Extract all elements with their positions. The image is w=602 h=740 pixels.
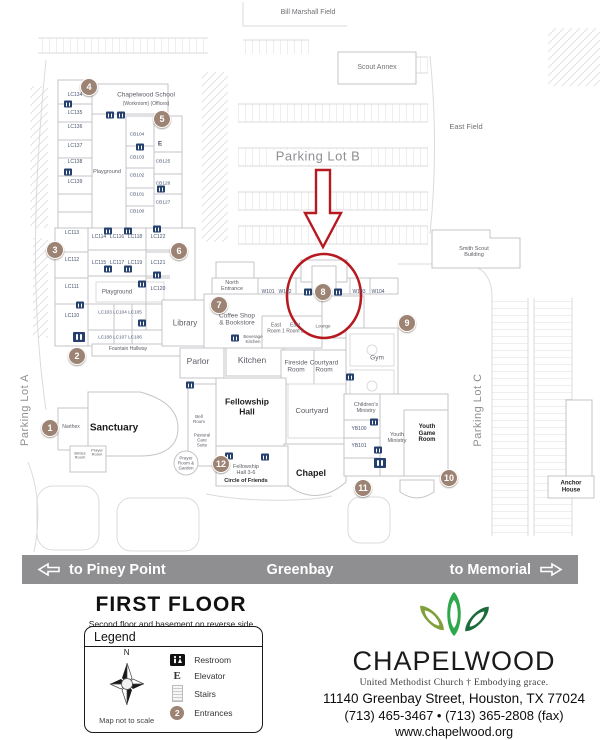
legend-title: Legend — [85, 627, 262, 647]
legend-label-restroom: Restroom — [194, 655, 231, 665]
brand-address: 11140 Greenbay Street, Houston, TX 77024 — [312, 691, 596, 706]
restroom-icon — [138, 281, 146, 288]
brand-tagline: United Methodist Church † Embodying grac… — [312, 678, 596, 688]
brand-name: CHAPELWOOD — [312, 646, 596, 677]
entrance-badge-icon: 2 — [170, 706, 184, 720]
restroom-icon — [106, 112, 114, 119]
entrance-8-marker: 8 — [314, 283, 332, 301]
legend-row-entrances: 2 Entrances — [168, 706, 262, 720]
entrance-9-marker: 9 — [398, 314, 416, 332]
to-memorial-label: to Memorial — [450, 562, 531, 578]
restroom-icon — [64, 169, 72, 176]
restroom-icon — [117, 112, 125, 119]
restroom-icon — [157, 186, 165, 193]
restroom-icon — [170, 654, 185, 666]
restroom-icon — [374, 447, 382, 454]
restroom-icon — [124, 266, 132, 273]
restroom-icon — [124, 228, 132, 235]
brand-block: CHAPELWOOD United Methodist Church † Emb… — [312, 590, 596, 739]
chapelwood-leaves-logo — [394, 590, 514, 640]
stairs-icon — [172, 685, 183, 702]
floor-title: FIRST FLOOR — [78, 593, 264, 617]
restroom-icon — [104, 228, 112, 235]
compass-rose-icon — [101, 656, 153, 712]
restroom-icon — [374, 458, 386, 468]
west-arrow-icon — [36, 562, 62, 577]
restroom-icon — [304, 289, 312, 296]
entrance-12-marker: 12 — [212, 455, 230, 473]
legend-label-stairs: Stairs — [194, 689, 216, 699]
banner-left-group: to Piney Point — [36, 562, 166, 578]
legend-row-elevator: E Elevator — [168, 670, 262, 682]
elevator-icon: E — [158, 141, 162, 148]
to-piney-point-label: to Piney Point — [69, 562, 166, 578]
compass-north-label: N — [124, 648, 130, 657]
entrance-1-marker: 1 — [41, 419, 59, 437]
restroom-icon — [136, 144, 144, 151]
legend-row-restroom: Restroom — [168, 654, 262, 666]
brand-website: www.chapelwood.org — [312, 725, 596, 739]
legend-label-elevator: Elevator — [194, 671, 225, 681]
entrance-10-marker: 10 — [440, 469, 458, 487]
legend-row-stairs: Stairs — [168, 685, 262, 702]
restroom-icon — [64, 101, 72, 108]
restroom-icon — [76, 302, 84, 309]
street-banner: to Piney Point Greenbay to Memorial — [22, 555, 578, 584]
greenbay-label: Greenbay — [267, 562, 334, 578]
restroom-icon — [104, 266, 112, 273]
entrance-11-marker: 11 — [354, 479, 372, 497]
campus-map-page: Bill Marshall FieldScout AnnexEast Field… — [0, 0, 602, 740]
east-arrow-icon — [538, 562, 564, 577]
entrance-2-marker: 2 — [68, 347, 86, 365]
restroom-icon — [186, 382, 194, 389]
restroom-icon — [334, 289, 342, 296]
entrance-4-marker: 4 — [80, 78, 98, 96]
entrance-3-marker: 3 — [46, 241, 64, 259]
entrance-6-marker: 6 — [170, 242, 188, 260]
banner-right-group: to Memorial — [450, 562, 564, 578]
entrance-7-marker: 7 — [210, 296, 228, 314]
compass-area: N Map not to scale — [85, 647, 168, 727]
restroom-icon — [231, 335, 239, 342]
legend-items: Restroom E Elevator Stairs 2 Entrances — [168, 647, 262, 727]
elevator-icon: E — [174, 670, 181, 682]
restroom-icon — [370, 419, 378, 426]
restroom-icon — [153, 272, 161, 279]
not-to-scale-note: Map not to scale — [99, 716, 154, 725]
brand-phone: (713) 465-3467 • (713) 365-2808 (fax) — [312, 708, 596, 723]
legend-box: Legend N Map no — [84, 626, 263, 733]
floor-title-block: FIRST FLOOR Second floor and basement on… — [78, 593, 264, 629]
restroom-icon — [346, 374, 354, 381]
restroom-icon — [138, 320, 146, 327]
restroom-icon — [73, 332, 85, 342]
entrance-5-marker: 5 — [153, 110, 171, 128]
legend-label-entrances: Entrances — [194, 708, 232, 718]
restroom-icon — [153, 226, 161, 233]
restroom-icon — [261, 454, 269, 461]
